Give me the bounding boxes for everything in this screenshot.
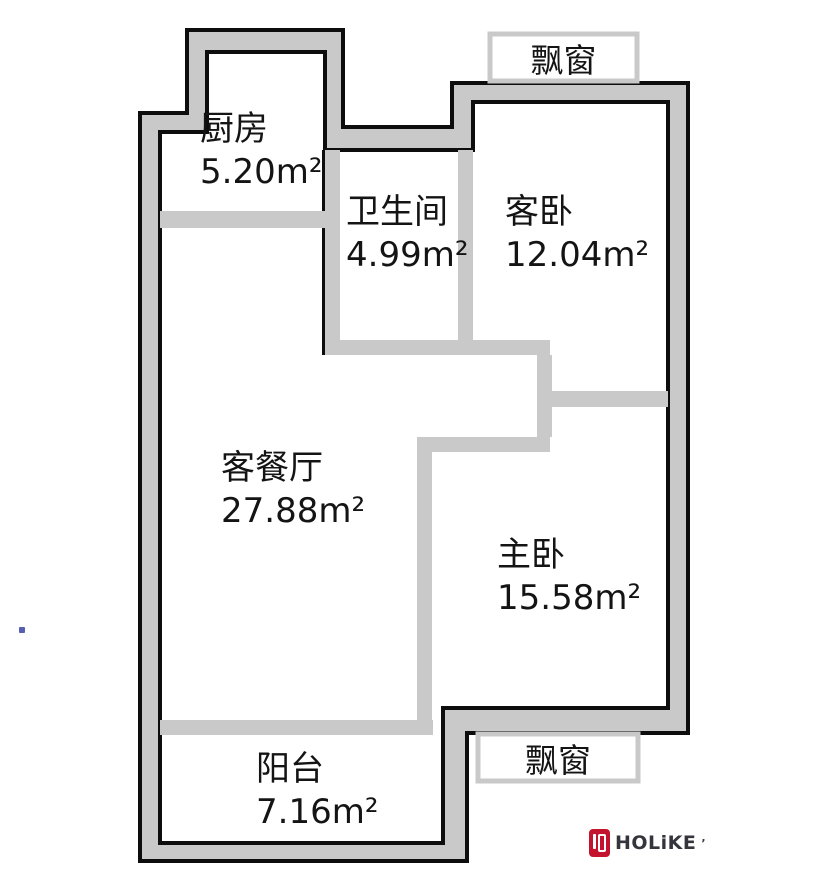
- room-label-guest-bedroom: 客卧 12.04m²: [505, 191, 649, 276]
- room-label-bathroom: 卫生间 4.99m²: [346, 191, 468, 276]
- interior-wall-master-left: [417, 437, 432, 723]
- room-name: 主卧: [497, 534, 641, 577]
- interior-wall-hall-right: [537, 355, 552, 437]
- interior-wall-master-top: [432, 437, 550, 452]
- floorplan-svg: [0, 0, 828, 895]
- room-area: 15.58m²: [497, 577, 641, 620]
- room-area: 4.99m²: [346, 234, 468, 277]
- holike-logo: HOLiKE ’: [589, 829, 706, 857]
- interior-wall-guestroom-bottom: [552, 391, 668, 407]
- logo-icon-door: [598, 834, 606, 852]
- floorplan-canvas: 飘窗 飘窗 厨房 5.20m² 卫生间 4.99m² 客卧 12.04m² 客餐…: [0, 0, 828, 895]
- room-name: 阳台: [256, 748, 378, 791]
- room-name: 客餐厅: [221, 447, 365, 490]
- room-label-balcony: 阳台 7.16m²: [256, 748, 378, 833]
- interior-wall-kitchen-divider: [160, 211, 325, 228]
- logo-icon-bar: [593, 834, 596, 849]
- room-name: 客卧: [505, 191, 649, 234]
- interior-wall-balcony-window: [160, 720, 433, 735]
- interior-wall-bathroom-bottom: [325, 340, 550, 355]
- interior-wall-bathroom-left: [325, 150, 340, 355]
- room-label-kitchen: 厨房 5.20m²: [200, 108, 322, 193]
- room-area: 7.16m²: [256, 791, 378, 834]
- wardrobe-icon: [589, 829, 610, 857]
- room-label-master-bedroom: 主卧 15.58m²: [497, 534, 641, 619]
- logo-wordmark: HOLiKE: [615, 832, 696, 854]
- room-area: 12.04m²: [505, 234, 649, 277]
- room-name: 卫生间: [346, 191, 468, 234]
- bay-window-label-bottom: 飘窗: [478, 734, 638, 781]
- room-area: 5.20m²: [200, 151, 322, 194]
- bay-window-label-top: 飘窗: [490, 34, 637, 81]
- room-area: 27.88m²: [221, 490, 365, 533]
- room-label-living-dining: 客餐厅 27.88m²: [221, 447, 365, 532]
- room-name: 厨房: [200, 108, 322, 151]
- logo-trademark: ’: [701, 837, 705, 850]
- artifact-dot: [19, 627, 25, 633]
